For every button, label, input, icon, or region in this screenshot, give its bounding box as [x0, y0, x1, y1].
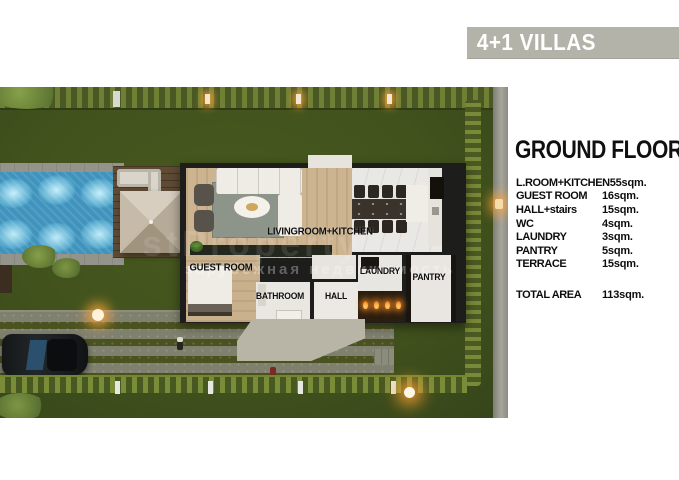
kitchen-island — [406, 185, 428, 222]
table-row: PANTRY 5sqm. — [516, 244, 674, 258]
top-hedge — [0, 87, 494, 110]
row-value: 3sqm. — [602, 231, 633, 243]
bush — [52, 258, 82, 278]
flame-icon — [374, 301, 379, 309]
bed-throw — [188, 304, 232, 312]
garden-lamp — [92, 309, 104, 321]
table-row: LAUNDRY 3sqm. — [516, 230, 674, 244]
row-label: WC — [516, 218, 602, 230]
row-label: HALL+stairs — [516, 204, 602, 216]
garden-lamp — [404, 387, 415, 398]
dining-table — [352, 199, 408, 219]
light-post — [298, 381, 303, 394]
room-label-laundry: LAUNDRY — [360, 266, 400, 276]
table-row: GUEST ROOM 16sqm. — [516, 190, 674, 204]
title-banner: 4+1 VILLAS — [467, 27, 679, 59]
page: stProperty зарубежная недвижимость LIVIN… — [0, 0, 679, 480]
fire-terrace — [358, 292, 404, 322]
dining-chair — [382, 220, 393, 233]
hall-floor — [314, 282, 358, 322]
total-label: TOTAL AREA — [516, 289, 602, 301]
bed-headboard — [188, 312, 232, 316]
area-table: L.ROOM+KITCHEN 55sqm. GUEST ROOM 16sqm. … — [516, 176, 674, 271]
armchair — [194, 184, 214, 206]
row-label: LAUNDRY — [516, 231, 602, 243]
parked-car — [2, 334, 88, 376]
dining-chair — [354, 185, 365, 198]
sofa — [216, 168, 302, 194]
room-label-guest: GUEST ROOM — [189, 263, 252, 274]
swimming-pool — [0, 172, 113, 254]
fence-post — [113, 91, 120, 107]
hedge-light — [296, 94, 301, 104]
dining-chair — [368, 185, 379, 198]
row-value: 55sqm. — [610, 177, 647, 189]
row-value: 5sqm. — [602, 245, 633, 257]
table-row: TERRACE 15sqm. — [516, 258, 674, 272]
pedestrian — [177, 342, 183, 350]
room-label-hall: HALL — [325, 291, 347, 301]
light-post — [208, 381, 213, 394]
coffee-table — [234, 196, 270, 218]
room-label-pantry: PANTRY — [412, 272, 445, 282]
bush — [0, 393, 46, 418]
bottom-hedge — [0, 375, 467, 393]
total-value: 113sqm. — [602, 289, 644, 301]
row-label: TERRACE — [516, 258, 602, 270]
table-row: L.ROOM+KITCHEN 55sqm. — [516, 176, 674, 190]
row-value: 15sqm. — [602, 258, 639, 270]
hedge-light — [387, 94, 392, 104]
right-hedge — [465, 100, 481, 386]
kitchen-sink — [432, 207, 439, 215]
light-post — [115, 381, 120, 394]
car-windshield — [26, 340, 47, 370]
banner-title: 4+1 VILLAS — [467, 27, 658, 58]
page-title: GROUND FLOOR — [515, 136, 679, 165]
car-roof — [47, 339, 77, 371]
flame-icon — [385, 301, 390, 309]
pavers — [374, 349, 394, 365]
total-area-row: TOTAL AREA 113sqm. — [516, 288, 674, 302]
light-post — [391, 381, 396, 394]
row-label: PANTRY — [516, 245, 602, 257]
entrance-terrace — [308, 155, 352, 168]
boundary-wall — [493, 87, 508, 418]
table-row: WC 4sqm. — [516, 217, 674, 231]
row-label: L.ROOM+KITCHEN — [516, 177, 610, 189]
flame-icon — [396, 301, 401, 309]
room-label-bathroom: BATHROOM — [256, 291, 304, 301]
fridge — [430, 177, 444, 199]
row-value: 15sqm. — [602, 204, 639, 216]
villa-rendering: stProperty зарубежная недвижимость LIVIN… — [0, 87, 508, 418]
flame-icon — [363, 301, 368, 309]
room-label-living: LIVINGROOM+KITCHEN — [267, 227, 373, 238]
table-row: HALL+stairs 15sqm. — [516, 203, 674, 217]
dining-chair — [382, 185, 393, 198]
hedge-light — [205, 94, 210, 104]
row-value: 16sqm. — [602, 190, 639, 202]
row-label: GUEST ROOM — [516, 190, 602, 202]
row-value: 4sqm. — [602, 218, 633, 230]
wall-light — [495, 199, 503, 209]
